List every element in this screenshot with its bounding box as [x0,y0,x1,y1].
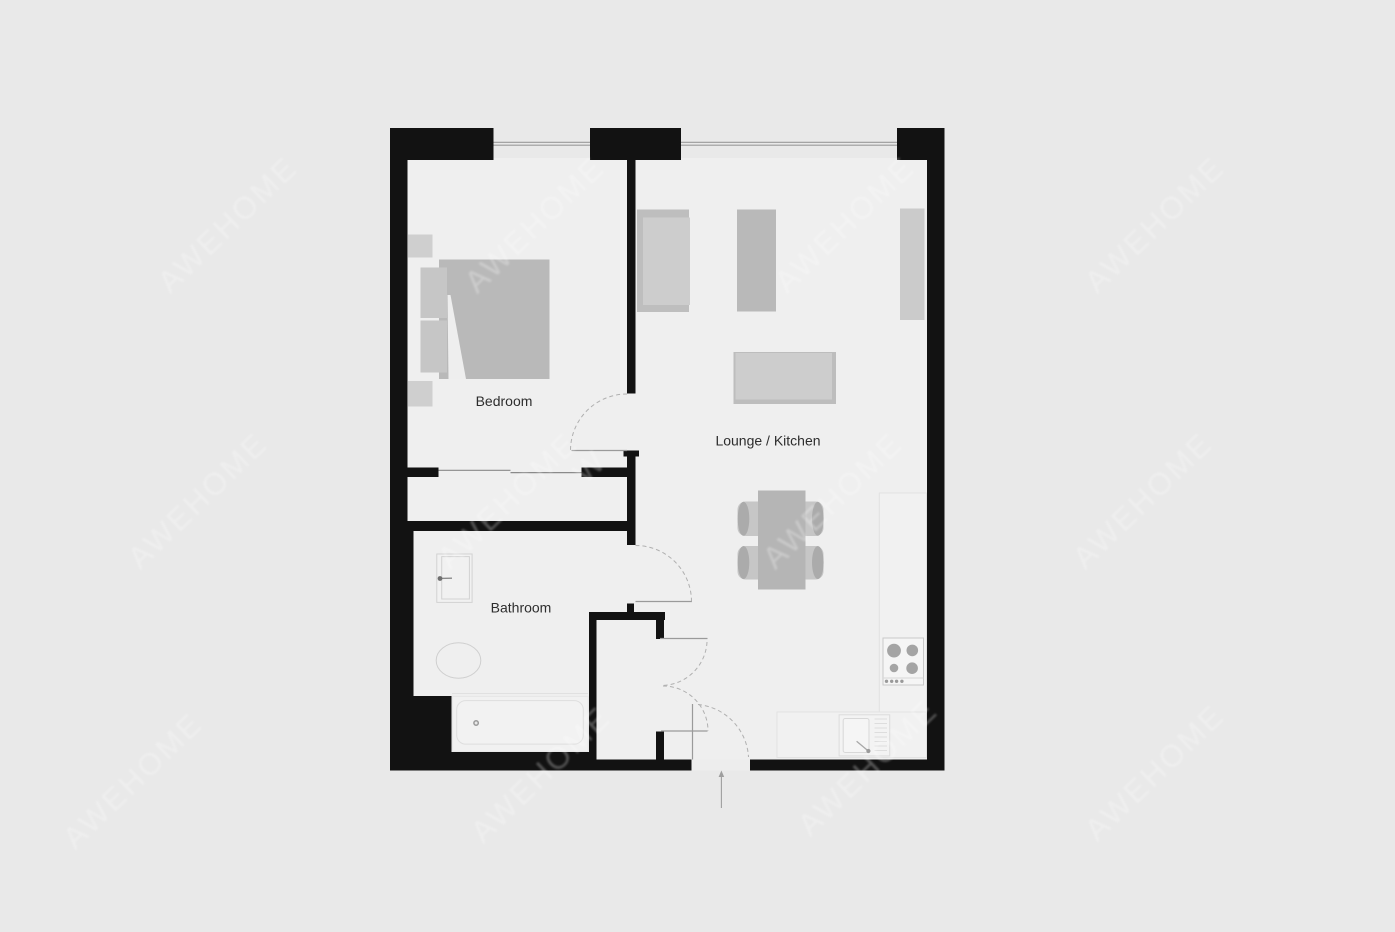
svg-text:Bedroom: Bedroom [476,393,533,409]
svg-text:Lounge / Kitchen: Lounge / Kitchen [715,433,820,449]
svg-text:Bathroom: Bathroom [491,600,552,616]
